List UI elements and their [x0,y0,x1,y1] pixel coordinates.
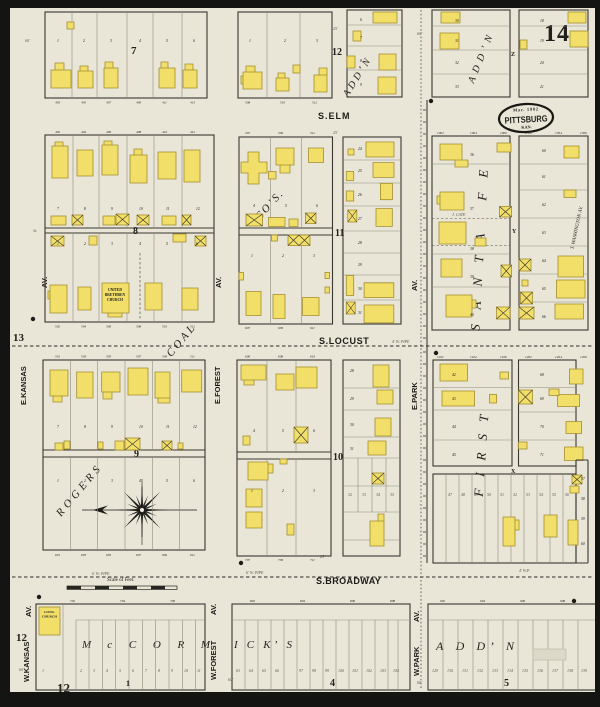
svg-text:59: 59 [581,517,585,521]
svg-text:S.BROADWAY: S.BROADWAY [316,576,381,586]
svg-text:405: 405 [81,101,86,105]
svg-text:E.KANSAS: E.KANSAS [19,366,28,405]
svg-text:507: 507 [136,355,141,359]
svg-text:29: 29 [358,263,362,267]
svg-text:8: 8 [360,59,362,63]
svg-text:29: 29 [350,397,354,401]
svg-text:104: 104 [393,668,399,673]
svg-text:1302: 1302 [525,131,532,135]
svg-text:1: 1 [126,679,130,688]
svg-text:711: 711 [310,558,315,562]
svg-text:2: 2 [83,39,85,43]
svg-text:1002: 1002 [437,131,444,135]
svg-text:W.KANSAS: W.KANSAS [22,642,31,682]
svg-text:31: 31 [358,311,362,315]
svg-text:1202: 1202 [525,355,532,359]
svg-text:12: 12 [332,47,342,58]
svg-text:49: 49 [474,492,478,497]
svg-text:505: 505 [106,355,111,359]
svg-text:402: 402 [55,130,60,134]
svg-text:102: 102 [366,668,372,673]
svg-text:56: 56 [565,492,569,497]
svg-text:11: 11 [197,668,201,673]
svg-text:133: 133 [492,668,498,673]
svg-text:AV.: AV. [214,277,223,288]
svg-text:138: 138 [567,668,573,673]
svg-text:5: 5 [166,39,168,43]
svg-text:3: 3 [313,254,315,258]
svg-text:408: 408 [136,130,141,134]
svg-text:709: 709 [278,558,283,562]
svg-text:6: 6 [313,429,315,433]
svg-text:25’: 25’ [333,130,339,135]
svg-text:20: 20 [540,61,544,65]
svg-text:70: 70 [540,425,544,429]
svg-text:6′ W. PIPE: 6′ W. PIPE [246,570,264,575]
svg-text:3: 3 [111,479,113,483]
svg-text:65: 65 [542,287,546,291]
svg-text:AV.: AV. [410,280,419,291]
svg-text:69: 69 [540,397,544,401]
svg-text:908: 908 [560,599,565,603]
svg-text:410: 410 [162,130,167,134]
svg-text:3: 3 [111,242,113,246]
svg-text:10: 10 [184,668,188,673]
svg-text:9: 9 [111,425,113,429]
svg-text:4: 4 [253,204,255,208]
svg-text:2: 2 [282,489,284,493]
svg-text:1104: 1104 [470,355,477,359]
svg-text:6′ W. PIPE: 6′ W. PIPE [92,571,110,576]
svg-text:99: 99 [325,668,329,673]
svg-text:139: 139 [581,668,587,673]
svg-text:18: 18 [540,19,544,23]
svg-text:1206: 1206 [580,355,587,359]
svg-text:508: 508 [245,101,250,105]
svg-text:4: 4 [106,668,108,673]
svg-text:707: 707 [245,558,250,562]
svg-text:6: 6 [196,242,198,246]
svg-text:25: 25 [358,169,362,173]
svg-text:32: 32 [348,492,352,497]
svg-text:39: 39 [470,275,474,279]
svg-text:55: 55 [552,492,556,497]
svg-text:CHURCH: CHURCH [107,298,123,302]
svg-text:136: 136 [537,668,543,673]
svg-text:1: 1 [57,39,59,43]
svg-text:65: 65 [262,668,266,673]
svg-text:103: 103 [380,668,386,673]
svg-text:100: 100 [338,668,344,673]
svg-text:10: 10 [333,452,343,463]
svg-text:403: 403 [55,101,60,105]
svg-text:4′ W.P.: 4′ W.P. [519,568,530,573]
svg-text:68: 68 [540,373,544,377]
svg-text:CONG.: CONG. [44,610,55,614]
svg-text:9: 9 [171,668,173,673]
svg-text:3: 3 [316,39,318,43]
svg-text:30: 30 [455,19,459,23]
svg-text:31: 31 [455,39,459,43]
svg-text:2: 2 [282,254,284,258]
svg-text:S.LOCUST: S.LOCUST [319,336,369,346]
svg-text:130: 130 [447,668,453,673]
svg-text:1: 1 [251,254,253,258]
svg-text:W.FOREST: W.FOREST [209,640,218,680]
svg-text:510: 510 [280,101,285,105]
svg-text:1102: 1102 [437,355,444,359]
svg-text:609: 609 [278,326,283,330]
svg-text:34: 34 [376,492,380,497]
svg-text:12: 12 [196,207,200,211]
svg-text:4′ W. PIPE: 4′ W. PIPE [392,339,410,344]
svg-text:1004: 1004 [470,131,477,135]
svg-text:AV.: AV. [412,611,421,622]
svg-text:607: 607 [136,553,141,557]
svg-text:9: 9 [360,83,362,87]
svg-text:11: 11 [166,425,170,429]
svg-text:J. CATE: J. CATE [452,212,466,217]
svg-text:1: 1 [57,479,59,483]
svg-text:UNITED: UNITED [108,288,122,292]
svg-text:129: 129 [432,668,438,673]
svg-text:35: 35 [390,492,394,497]
svg-text:10: 10 [139,425,143,429]
svg-text:26: 26 [358,193,362,197]
svg-text:Scale of Feet.: Scale of Feet. [107,578,134,583]
svg-text:44: 44 [452,425,456,429]
svg-text:409: 409 [136,101,141,105]
svg-text:904: 904 [480,599,485,603]
svg-text:510: 510 [162,325,167,329]
svg-text:6: 6 [193,39,195,43]
svg-text:5: 5 [166,242,168,246]
svg-text:AV.: AV. [209,604,218,615]
svg-text:64: 64 [249,668,253,673]
svg-text:31: 31 [350,447,354,451]
svg-text:50: 50 [487,492,491,497]
svg-text:52: 52 [513,492,517,497]
svg-text:53: 53 [526,492,530,497]
svg-text:28: 28 [350,369,354,373]
svg-text:38: 38 [470,247,474,251]
svg-text:603: 603 [81,553,86,557]
svg-text:5: 5 [285,204,287,208]
svg-text:3: 3 [93,668,95,673]
svg-text:501: 501 [55,355,60,359]
svg-text:1106: 1106 [500,355,507,359]
svg-text:804: 804 [300,599,305,603]
svg-text:60: 60 [581,542,585,546]
svg-text:509: 509 [278,131,283,135]
svg-text:511: 511 [190,355,195,359]
svg-text:1: 1 [57,242,59,246]
svg-text:4: 4 [139,242,141,246]
svg-text:66: 66 [542,315,546,319]
svg-text:12: 12 [16,632,28,644]
svg-text:611: 611 [190,553,195,557]
svg-text:131: 131 [462,668,468,673]
svg-text:№: № [32,228,37,233]
svg-text:63: 63 [542,231,546,235]
svg-text:14: 14 [544,21,570,47]
svg-text:906: 906 [520,599,525,603]
svg-text:7: 7 [131,45,137,57]
svg-text:607: 607 [245,326,250,330]
svg-text:36: 36 [470,153,474,157]
svg-text:6: 6 [360,18,362,22]
svg-text:1: 1 [42,668,44,673]
svg-text:8: 8 [84,207,86,211]
svg-text:2: 2 [84,479,86,483]
svg-text:60: 60 [542,149,546,153]
svg-text:CHURCH: CHURCH [42,615,57,619]
svg-text:E.FOREST: E.FOREST [213,366,222,404]
svg-text:5: 5 [166,479,168,483]
svg-text:51: 51 [500,492,504,497]
svg-text:43: 43 [452,397,456,401]
svg-text:610: 610 [310,355,315,359]
svg-text:60’: 60’ [19,667,25,672]
svg-text:902: 902 [440,599,445,603]
svg-text:412: 412 [190,130,195,134]
svg-text:605: 605 [106,553,111,557]
svg-text:3: 3 [313,489,315,493]
svg-text:512: 512 [312,101,317,105]
svg-text:60’: 60’ [228,677,234,682]
svg-text:42: 42 [452,373,456,377]
svg-text:30: 30 [358,287,362,291]
svg-text:802: 802 [250,599,255,603]
svg-text:12: 12 [193,425,197,429]
svg-text:509: 509 [162,355,167,359]
svg-text:706: 706 [170,599,175,603]
svg-text:62: 62 [542,203,546,207]
svg-text:808: 808 [390,599,395,603]
svg-text:71: 71 [540,453,544,457]
svg-text:2: 2 [84,242,86,246]
svg-text:32: 32 [455,61,459,65]
svg-text:4: 4 [330,678,335,689]
svg-text:135: 135 [522,668,528,673]
svg-text:601: 601 [55,553,60,557]
svg-text:606: 606 [245,355,250,359]
svg-text:66: 66 [275,668,279,673]
svg-text:2: 2 [284,39,286,43]
svg-text:11: 11 [166,207,170,211]
svg-text:404: 404 [81,130,86,134]
svg-text:8: 8 [158,668,160,673]
svg-text:3: 3 [110,39,112,43]
svg-text:30: 30 [350,423,354,427]
svg-text:512: 512 [190,325,195,329]
svg-text:1204: 1204 [555,355,562,359]
svg-text:1304: 1304 [555,131,562,135]
svg-text:6: 6 [316,204,318,208]
svg-text:13: 13 [13,332,25,344]
svg-text:413: 413 [190,101,195,105]
svg-text:60’: 60’ [417,680,423,685]
svg-text:33: 33 [362,492,366,497]
svg-text:40: 40 [470,313,474,317]
svg-text:507: 507 [245,131,250,135]
svg-text:24: 24 [358,147,362,151]
svg-text:4: 4 [139,39,141,43]
svg-text:Z: Z [511,52,515,58]
svg-text:Y: Y [512,229,517,235]
svg-text:134: 134 [507,668,513,673]
svg-text:6: 6 [193,479,195,483]
svg-text:4: 4 [253,429,255,433]
svg-text:704: 704 [120,599,125,603]
svg-text:21: 21 [540,85,544,89]
svg-text:33: 33 [455,85,459,89]
svg-text:508: 508 [136,325,141,329]
svg-text:19: 19 [540,39,544,43]
svg-text:1: 1 [251,489,253,493]
svg-text:5: 5 [119,668,121,673]
svg-text:1: 1 [249,39,251,43]
svg-text:5: 5 [282,429,284,433]
svg-text:511: 511 [310,131,315,135]
svg-text:411: 411 [162,101,167,105]
svg-text:506: 506 [106,325,111,329]
svg-text:60’: 60’ [25,38,31,43]
svg-text:48: 48 [461,492,465,497]
svg-text:2: 2 [80,668,82,673]
svg-text:9: 9 [111,207,113,211]
svg-text:61: 61 [542,175,546,179]
svg-text:W.PARK: W.PARK [412,646,421,676]
svg-text:502: 502 [55,325,60,329]
svg-text:6: 6 [132,668,134,673]
svg-text:10: 10 [139,207,143,211]
svg-text:64: 64 [542,259,546,263]
svg-text:S.ELM: S.ELM [318,111,351,121]
svg-text:1006: 1006 [500,131,507,135]
svg-text:63: 63 [236,668,240,673]
svg-text:101: 101 [352,668,358,673]
svg-text:98: 98 [312,668,316,673]
svg-text:8: 8 [133,226,138,237]
svg-text:407: 407 [106,101,111,105]
svg-text:60’: 60’ [417,31,423,36]
svg-text:806: 806 [350,599,355,603]
svg-text:1306: 1306 [580,131,587,135]
svg-text:45: 45 [452,453,456,457]
svg-text:137: 137 [552,668,559,673]
svg-text:KAN.: KAN. [521,124,532,130]
svg-text:54: 54 [539,492,543,497]
svg-text:BRETHREN: BRETHREN [105,293,126,297]
svg-text:608: 608 [278,355,283,359]
svg-text:AV.: AV. [24,606,33,617]
svg-text:25’: 25’ [333,26,339,31]
svg-text:406: 406 [106,130,111,134]
svg-text:9: 9 [134,449,139,460]
svg-text:8: 8 [84,425,86,429]
svg-text:504: 504 [81,325,86,329]
svg-text:5: 5 [504,678,509,689]
svg-text:E.PARK: E.PARK [410,382,419,410]
svg-text:4: 4 [139,479,141,483]
svg-text:132: 132 [477,668,483,673]
svg-text:609: 609 [162,553,167,557]
svg-text:503: 503 [81,355,86,359]
svg-text:58: 58 [581,497,585,501]
svg-text:702: 702 [70,599,75,603]
svg-text:611: 611 [310,326,315,330]
svg-text:28: 28 [358,241,362,245]
